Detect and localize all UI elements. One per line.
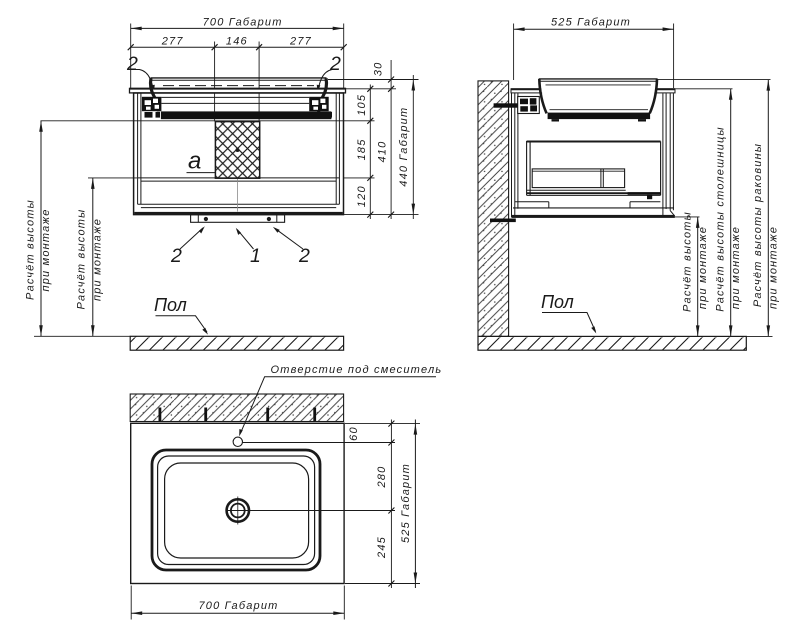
svg-text:при монтаже: при монтаже [697,226,709,309]
svg-text:1: 1 [250,245,261,267]
svg-text:при монтаже: при монтаже [40,208,52,291]
svg-text:при монтаже: при монтаже [91,218,103,301]
svg-text:при монтаже: при монтаже [767,226,779,309]
svg-text:Пол: Пол [541,292,574,312]
svg-text:146: 146 [226,35,248,47]
svg-text:Расчёт высоты: Расчёт высоты [25,199,37,300]
svg-text:2: 2 [329,53,341,75]
svg-text:Расчёт высоты раковины: Расчёт высоты раковины [752,143,764,307]
svg-text:Пол: Пол [154,295,187,315]
svg-text:30: 30 [372,61,384,76]
svg-text:525 Габарит: 525 Габарит [551,17,631,29]
svg-text:700 Габарит: 700 Габарит [198,600,278,612]
svg-text:440 Габарит: 440 Габарит [398,107,410,187]
svg-text:Расчёт высоты: Расчёт высоты [75,209,87,310]
svg-text:185: 185 [356,138,368,160]
svg-text:2: 2 [126,53,138,75]
svg-text:525 Габарит: 525 Габарит [400,463,412,543]
svg-text:700 Габарит: 700 Габарит [203,17,283,29]
svg-text:a: a [188,148,201,175]
svg-text:Расчёт высоты столешницы: Расчёт высоты столешницы [714,126,726,312]
svg-text:при монтаже: при монтаже [730,226,742,309]
svg-text:277: 277 [161,35,184,47]
svg-text:Отверстие под смеситель: Отверстие под смеситель [271,364,443,376]
svg-text:60: 60 [348,426,360,441]
svg-text:2: 2 [298,245,310,267]
svg-text:280: 280 [376,466,388,489]
svg-text:277: 277 [289,35,312,47]
svg-text:245: 245 [376,536,388,559]
svg-text:105: 105 [356,94,368,116]
svg-text:Расчёт высоты: Расчёт высоты [681,211,693,312]
svg-text:120: 120 [356,185,368,207]
svg-text:410: 410 [376,141,388,163]
